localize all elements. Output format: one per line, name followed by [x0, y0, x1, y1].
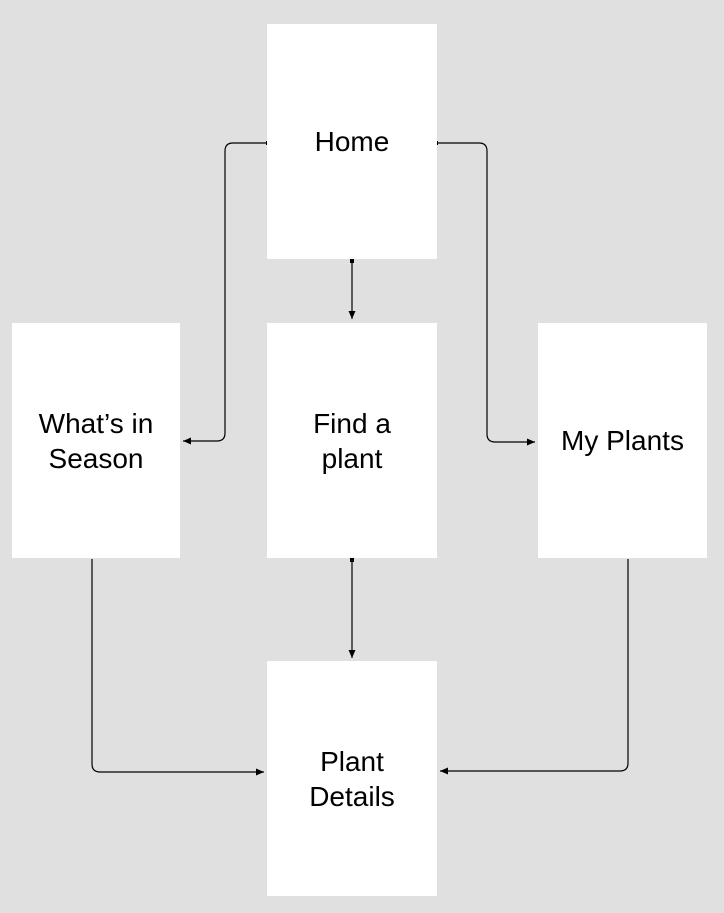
diagram-canvas: Home What’s in Season Find a plant My Pl…	[0, 0, 724, 913]
node-whats-in-season[interactable]: What’s in Season	[12, 323, 180, 558]
node-find-a-plant-label: Find a	[313, 406, 391, 441]
node-my-plants[interactable]: My Plants	[538, 323, 707, 558]
node-whats-in-season-label: What’s in	[39, 406, 154, 441]
connector-home-to-whats-in-season	[183, 143, 268, 441]
connector-whats-in-season-to-plant-details	[92, 559, 264, 772]
connector-my-plants-to-plant-details	[440, 559, 628, 771]
node-home[interactable]: Home	[267, 24, 437, 259]
node-find-a-plant-label-line2: plant	[322, 441, 383, 476]
node-plant-details[interactable]: Plant Details	[267, 661, 437, 896]
node-plant-details-label-line2: Details	[309, 779, 395, 814]
node-home-label: Home	[315, 124, 390, 159]
node-find-a-plant[interactable]: Find a plant	[267, 323, 437, 558]
connector-home-to-my-plants	[436, 143, 535, 442]
node-whats-in-season-label-line2: Season	[49, 441, 144, 476]
node-plant-details-label: Plant	[320, 744, 384, 779]
node-my-plants-label: My Plants	[561, 423, 684, 458]
